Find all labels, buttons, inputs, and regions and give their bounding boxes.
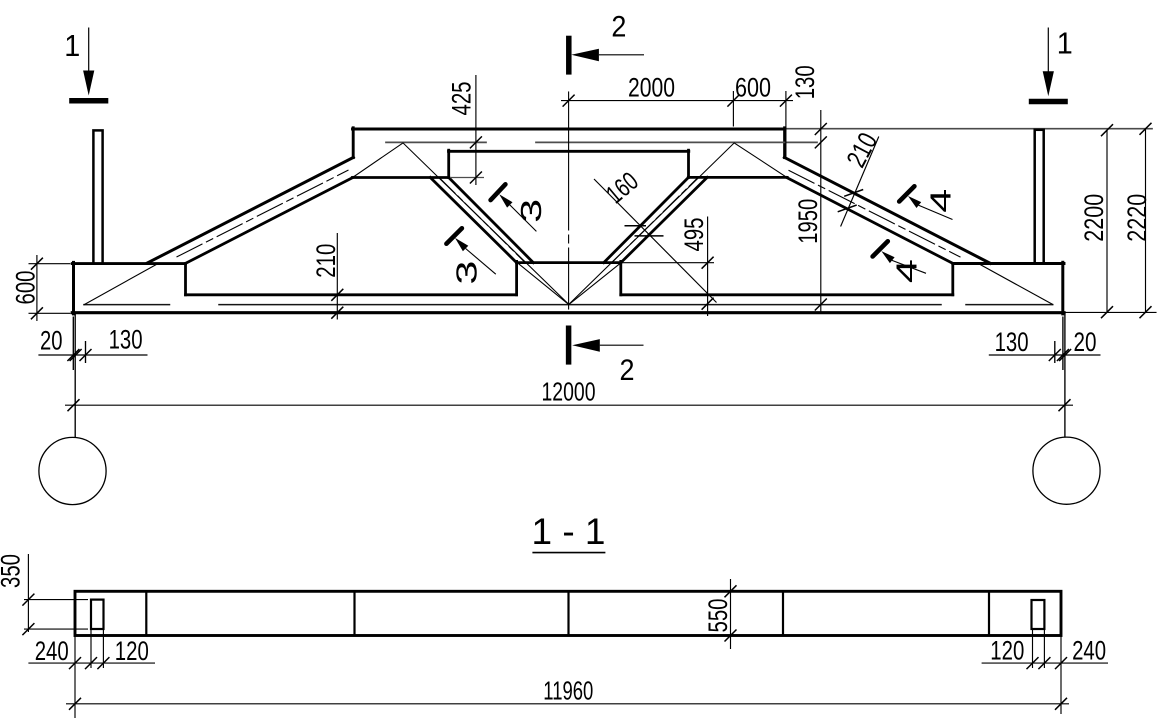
svg-text:2: 2 bbox=[611, 11, 626, 44]
svg-text:2200: 2200 bbox=[1079, 194, 1109, 242]
svg-text:130: 130 bbox=[790, 65, 820, 99]
svg-text:240: 240 bbox=[35, 636, 69, 666]
svg-text:2000: 2000 bbox=[628, 72, 675, 102]
svg-text:20: 20 bbox=[40, 325, 63, 355]
svg-text:600: 600 bbox=[11, 271, 41, 305]
svg-text:350: 350 bbox=[0, 554, 26, 588]
svg-text:1: 1 bbox=[64, 28, 80, 63]
svg-text:210: 210 bbox=[311, 244, 341, 278]
svg-text:425: 425 bbox=[447, 82, 477, 116]
svg-text:1 - 1: 1 - 1 bbox=[532, 510, 606, 552]
svg-text:240: 240 bbox=[1072, 636, 1106, 666]
svg-text:550: 550 bbox=[703, 599, 733, 633]
svg-text:4: 4 bbox=[926, 189, 958, 213]
svg-text:1: 1 bbox=[1057, 26, 1073, 61]
svg-text:600: 600 bbox=[735, 72, 771, 102]
svg-text:20: 20 bbox=[1074, 327, 1097, 357]
svg-text:120: 120 bbox=[115, 636, 149, 666]
svg-text:130: 130 bbox=[995, 327, 1029, 357]
svg-text:1950: 1950 bbox=[793, 199, 823, 244]
svg-text:495: 495 bbox=[679, 218, 709, 252]
svg-text:4: 4 bbox=[891, 259, 923, 283]
svg-text:130: 130 bbox=[109, 325, 143, 355]
svg-text:120: 120 bbox=[990, 636, 1024, 666]
svg-text:11960: 11960 bbox=[543, 675, 593, 705]
svg-text:3: 3 bbox=[451, 261, 483, 285]
svg-text:2220: 2220 bbox=[1122, 194, 1152, 242]
svg-text:12000: 12000 bbox=[542, 377, 596, 407]
svg-text:2: 2 bbox=[620, 354, 635, 387]
svg-text:3: 3 bbox=[516, 199, 548, 223]
